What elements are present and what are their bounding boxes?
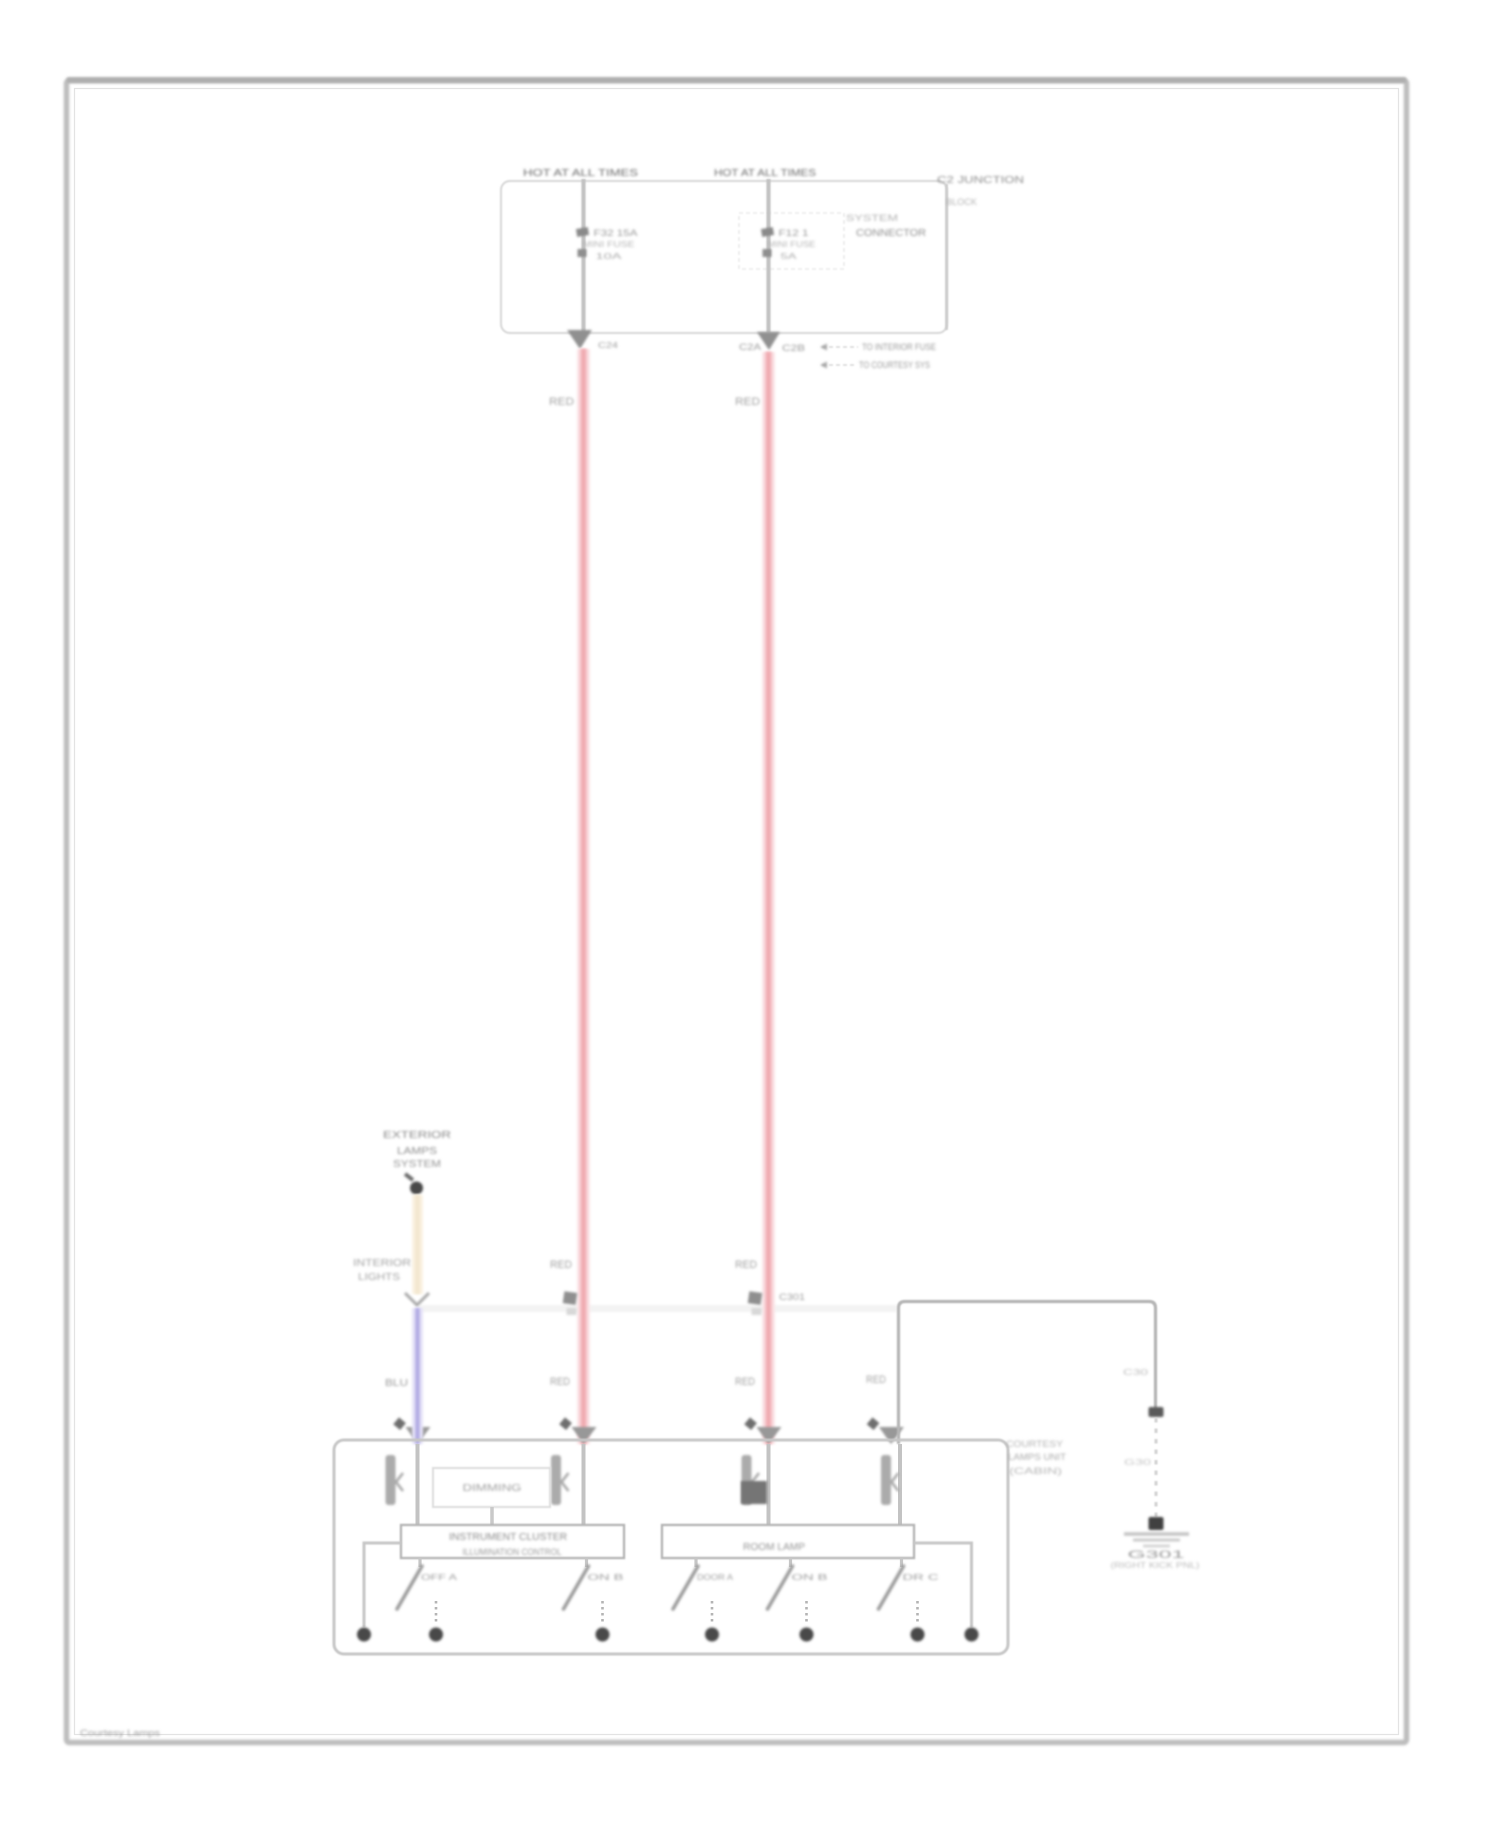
svg-text:C24: C24 bbox=[598, 340, 618, 350]
svg-text:SYSTEM: SYSTEM bbox=[846, 213, 898, 224]
svg-text:RED: RED bbox=[549, 396, 574, 408]
svg-text:DOOR A: DOOR A bbox=[697, 1573, 734, 1582]
svg-text:RED: RED bbox=[735, 396, 760, 408]
svg-text:MINI FUSE: MINI FUSE bbox=[768, 239, 816, 249]
svg-text:ON B: ON B bbox=[588, 1573, 624, 1582]
svg-text:COURTESY: COURTESY bbox=[1006, 1439, 1063, 1449]
svg-text:RED: RED bbox=[866, 1374, 886, 1386]
svg-text:5A: 5A bbox=[781, 251, 797, 261]
svg-text:LIGHTS: LIGHTS bbox=[358, 1272, 400, 1283]
svg-text:OFF A: OFF A bbox=[421, 1573, 458, 1582]
svg-text:LAMPS: LAMPS bbox=[397, 1146, 437, 1157]
svg-text:INSTRUMENT CLUSTER: INSTRUMENT CLUSTER bbox=[449, 1532, 567, 1543]
svg-text:ON B: ON B bbox=[792, 1573, 828, 1582]
svg-text:HOT AT ALL TIMES: HOT AT ALL TIMES bbox=[714, 167, 816, 179]
svg-text:C2A: C2A bbox=[739, 342, 761, 352]
svg-text:HOT AT ALL TIMES: HOT AT ALL TIMES bbox=[523, 167, 638, 179]
svg-text:(CABIN): (CABIN) bbox=[1009, 1466, 1062, 1476]
svg-text:BLOCK: BLOCK bbox=[946, 197, 977, 207]
svg-text:G301: G301 bbox=[1128, 1549, 1185, 1561]
svg-text:TO COURTESY SYS: TO COURTESY SYS bbox=[859, 360, 930, 371]
svg-text:ILLUMINATION CONTROL: ILLUMINATION CONTROL bbox=[463, 1547, 562, 1558]
svg-text:CONNECTOR: CONNECTOR bbox=[856, 228, 926, 239]
svg-text:RED: RED bbox=[735, 1259, 757, 1271]
svg-text:ROOM LAMP: ROOM LAMP bbox=[743, 1542, 805, 1553]
svg-text:EXTERIOR: EXTERIOR bbox=[383, 1129, 452, 1141]
svg-text:DR C: DR C bbox=[903, 1573, 939, 1582]
svg-text:C2 JUNCTION: C2 JUNCTION bbox=[937, 174, 1024, 186]
svg-text:DIMMING: DIMMING bbox=[463, 1483, 522, 1494]
svg-text:MINI FUSE: MINI FUSE bbox=[583, 239, 635, 249]
svg-text:G30: G30 bbox=[1124, 1457, 1151, 1467]
svg-text:RED: RED bbox=[735, 1376, 755, 1388]
svg-text:F12 1: F12 1 bbox=[779, 228, 809, 238]
svg-text:Courtesy Lamps: Courtesy Lamps bbox=[80, 1728, 161, 1738]
svg-text:10A: 10A bbox=[596, 251, 623, 261]
svg-text:C30: C30 bbox=[1123, 1367, 1148, 1377]
svg-text:C2B: C2B bbox=[782, 343, 805, 353]
svg-text:C301: C301 bbox=[779, 1292, 805, 1302]
svg-text:SYSTEM: SYSTEM bbox=[393, 1159, 441, 1170]
svg-text:RED: RED bbox=[550, 1376, 570, 1388]
svg-text:RED: RED bbox=[550, 1259, 572, 1271]
svg-text:LAMPS UNIT: LAMPS UNIT bbox=[1008, 1452, 1067, 1462]
svg-text:INTERIOR: INTERIOR bbox=[353, 1258, 411, 1269]
svg-text:TO INTERIOR FUSE: TO INTERIOR FUSE bbox=[862, 342, 936, 353]
svg-text:BLU: BLU bbox=[385, 1378, 408, 1389]
svg-text:F32 15A: F32 15A bbox=[594, 228, 638, 238]
svg-text:(RIGHT KICK PNL): (RIGHT KICK PNL) bbox=[1111, 1561, 1200, 1570]
